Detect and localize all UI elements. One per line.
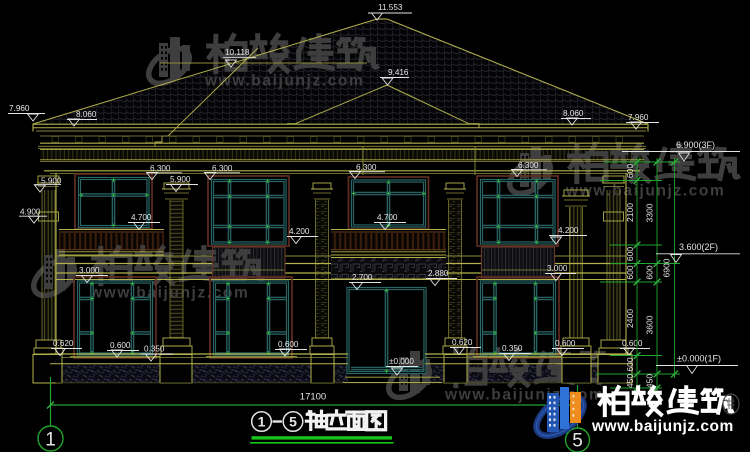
svg-text:600: 600 [625, 164, 635, 178]
svg-text:3.000: 3.000 [547, 264, 568, 273]
svg-text:8.060: 8.060 [76, 110, 97, 119]
svg-text:3300: 3300 [645, 203, 655, 222]
svg-text:4.900: 4.900 [20, 208, 41, 217]
svg-text:6.300: 6.300 [356, 163, 377, 172]
svg-text:www.baijunjz.com: www.baijunjz.com [591, 418, 734, 435]
svg-text:5.900: 5.900 [170, 175, 191, 184]
svg-text:0.620: 0.620 [53, 339, 74, 348]
svg-text:0.350: 0.350 [144, 345, 165, 354]
svg-text:11.553: 11.553 [378, 3, 403, 12]
svg-text:17100: 17100 [300, 392, 326, 403]
svg-text:0.620: 0.620 [452, 338, 473, 347]
svg-text:2.700: 2.700 [352, 273, 373, 282]
svg-text:6.300: 6.300 [212, 164, 233, 173]
svg-text:600: 600 [625, 265, 635, 279]
svg-text:6.900(3F): 6.900(3F) [676, 140, 715, 150]
svg-text:7.960: 7.960 [9, 104, 30, 113]
svg-text:3.000: 3.000 [79, 266, 100, 275]
svg-text:2.880: 2.880 [428, 269, 449, 278]
svg-text:0.350: 0.350 [502, 344, 523, 353]
svg-text:5.900: 5.900 [41, 177, 62, 186]
svg-text:10.118: 10.118 [225, 48, 250, 57]
svg-text:1: 1 [258, 414, 266, 430]
svg-text:±0.000: ±0.000 [389, 357, 414, 366]
svg-text:6.300: 6.300 [150, 164, 171, 173]
svg-text:9.416: 9.416 [388, 68, 409, 77]
svg-text:1: 1 [45, 430, 56, 451]
svg-text:600: 600 [625, 357, 635, 371]
svg-text:3600: 3600 [645, 315, 655, 334]
svg-text:4.200: 4.200 [289, 227, 310, 236]
svg-text:4.700: 4.700 [131, 213, 152, 222]
svg-text:0.600: 0.600 [278, 340, 299, 349]
svg-text:www.baijunjz.com: www.baijunjz.com [565, 183, 725, 200]
svg-text:2100: 2100 [625, 203, 635, 222]
svg-text:6.300: 6.300 [518, 161, 539, 170]
svg-text:6900: 6900 [662, 258, 672, 277]
svg-text:www.baijunjz.com: www.baijunjz.com [204, 73, 364, 90]
svg-text:0.600: 0.600 [622, 339, 643, 348]
svg-text:450: 450 [625, 374, 635, 388]
svg-text:0.600: 0.600 [110, 341, 131, 350]
svg-text:5: 5 [572, 431, 583, 452]
svg-text:7.960: 7.960 [628, 113, 649, 122]
svg-text:4.700: 4.700 [377, 213, 398, 222]
svg-text:600: 600 [645, 265, 655, 279]
svg-text:±0.000(1F): ±0.000(1F) [677, 354, 721, 364]
svg-text:3.600(2F): 3.600(2F) [679, 242, 718, 252]
svg-text:600: 600 [625, 247, 635, 261]
svg-text:0.600: 0.600 [555, 339, 576, 348]
svg-text:5: 5 [289, 414, 297, 430]
svg-text:8.060: 8.060 [563, 109, 584, 118]
svg-text:2400: 2400 [625, 309, 635, 328]
svg-text:4.200: 4.200 [558, 226, 579, 235]
